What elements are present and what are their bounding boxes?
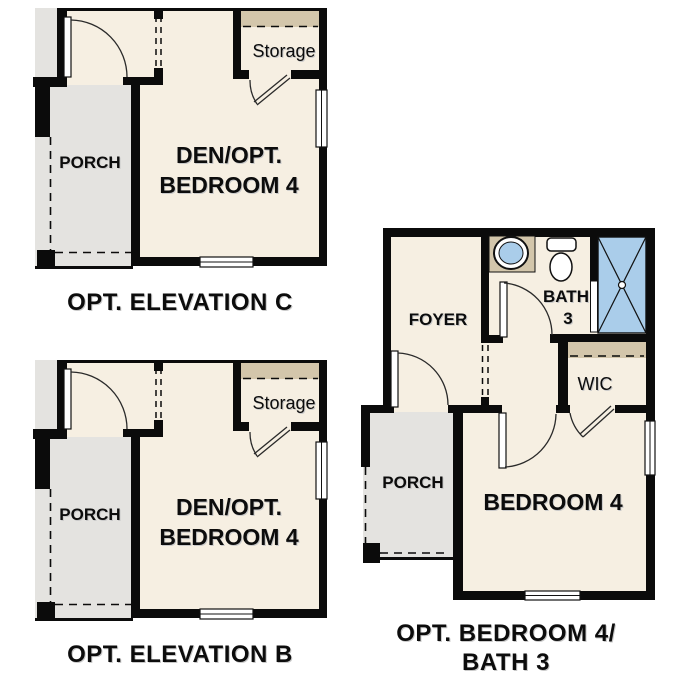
room-label-storage: Storage: [252, 41, 315, 61]
floorplan-elevation-b: PORCH DEN/OPT. BEDROOM 4 Storage OPT. EL…: [33, 360, 327, 668]
room-label-den-line2: BEDROOM 4: [159, 524, 299, 550]
room-label-den-line1: DEN/OPT.: [176, 494, 282, 520]
plan-caption-bedroom4-bath3-line2: BATH 3: [462, 649, 550, 676]
room-label-porch: PORCH: [382, 473, 443, 492]
window-right: [645, 421, 655, 475]
shower-icon: [591, 237, 647, 333]
wic-header: [568, 342, 646, 358]
floorplan-elevation-c: PORCH DEN/OPT. BEDROOM 4 Storage OPT. EL…: [33, 8, 327, 316]
room-label-bath-line1: BATH: [543, 287, 589, 306]
room-label-wic: WIC: [578, 374, 613, 394]
room-label-foyer: FOYER: [409, 310, 468, 329]
plan-caption-elevation-c: OPT. ELEVATION C: [67, 289, 293, 316]
floorplan-opt-bedroom4-bath3: FOYER BATH 3 WIC PORCH BEDROOM 4 OPT. BE…: [361, 228, 655, 676]
room-label-bath-line2: 3: [563, 309, 572, 328]
window-bottom: [525, 591, 580, 600]
room-label-porch: PORCH: [59, 505, 120, 524]
room-label-storage: Storage: [252, 393, 315, 413]
floorplan-canvas: PORCH DEN/OPT. BEDROOM 4 Storage OPT. EL…: [0, 0, 687, 687]
room-label-porch: PORCH: [59, 153, 120, 172]
plan-caption-elevation-b: OPT. ELEVATION B: [67, 641, 293, 668]
shower-door: [591, 281, 598, 332]
floorplan-sheet: PORCH DEN/OPT. BEDROOM 4 Storage OPT. EL…: [0, 0, 687, 687]
sink-icon: [489, 236, 535, 272]
room-label-den-line1: DEN/OPT.: [176, 142, 282, 168]
room-label-den-line2: BEDROOM 4: [159, 172, 299, 198]
room-label-bedroom: BEDROOM 4: [483, 489, 623, 515]
plan-caption-bedroom4-bath3-line1: OPT. BEDROOM 4/: [396, 620, 616, 647]
